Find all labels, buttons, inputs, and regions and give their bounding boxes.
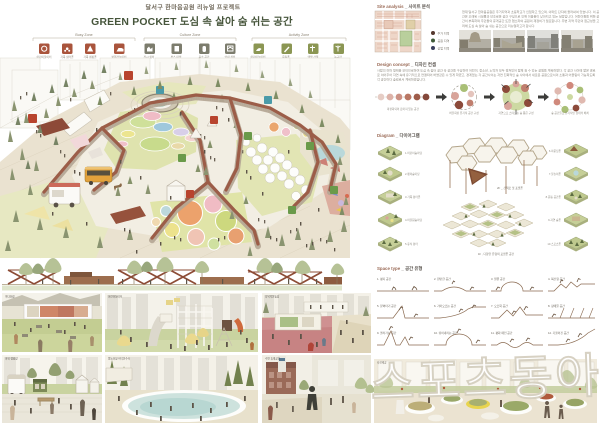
svg-text:9.자연 숲존: 9.자연 숲존 [548, 218, 561, 222]
svg-text:1. 평지 공간: 1. 평지 공간 [377, 277, 392, 281]
svg-text:2.팽이숲마당: 2.팽이숲마당 [405, 172, 420, 176]
svg-text:가족 쉼터존: 가족 쉼터존 [60, 55, 74, 59]
svg-text:5.휴식 쉼터: 5.휴식 쉼터 [405, 242, 418, 246]
svg-text:8.운동 공간존: 8.운동 공간존 [546, 195, 562, 199]
svg-text:Space type _ 공간 유형: Space type _ 공간 유형 [377, 265, 422, 272]
svg-text:2F _ 산책로 및 포켓존: 2F _ 산책로 및 포켓존 [497, 186, 523, 190]
svg-text:Culture Zone: Culture Zone [180, 33, 201, 37]
svg-text:Design concept _ 디자인 컨셉: Design concept _ 디자인 컨셉 [377, 61, 436, 68]
svg-text:달서구 한마음공원 리뉴얼 프로젝트: 달서구 한마음공원 리뉴얼 프로젝트 [145, 4, 240, 12]
svg-text:사람의 허파 형태를 모티브로하여 도심 속 쉼터 공간 속: 사람의 허파 형태를 모티브로하여 도심 속 쉼터 공간 속 공간을 구상하여 … [377, 68, 596, 73]
svg-text:자연으로 스며드는 숲 품은 구성: 자연으로 스며드는 숲 품은 구성 [498, 111, 534, 115]
svg-text:1.어린이숲마당: 1.어린이숲마당 [405, 151, 423, 155]
svg-text:GREEN POCKET 도심 속 살아 숨 쉬는 공간: GREEN POCKET 도심 속 살아 숨 쉬는 공간 [91, 15, 293, 28]
svg-text:4.어울림숲마당: 4.어울림숲마당 [405, 218, 423, 222]
svg-text:3. 원뿔 공간: 3. 원뿔 공간 [491, 277, 506, 281]
svg-text:Activity Zone: Activity Zone [289, 33, 310, 37]
svg-text:6.마운딩존: 6.마운딩존 [549, 149, 562, 153]
svg-text:상업 지역: 상업 지역 [438, 45, 450, 50]
svg-text:가족 캠핑존: 가족 캠핑존 [83, 55, 97, 59]
svg-text:물놀이형 바닥분수터: 물놀이형 바닥분수터 [108, 357, 131, 361]
svg-text:2. 완만한 공간: 2. 완만한 공간 [434, 277, 451, 281]
svg-text:8. 장애물 공간: 8. 장애물 공간 [548, 304, 565, 308]
svg-text:Site analysis _ 사이트 분석: Site analysis _ 사이트 분석 [377, 3, 430, 10]
svg-text:어린이놀이터: 어린이놀이터 [108, 295, 123, 299]
svg-text:로 이어주어 자연 속에 유기적으로 연결되어 버블같은 수: 로 이어주어 자연 속에 유기적으로 연결되어 버블같은 수 있게 하였고, 경… [377, 72, 595, 77]
svg-text:다목적운동장: 다목적운동장 [265, 295, 280, 299]
svg-text:파편화되어 흩어져 있는 공간: 파편화되어 흩어져 있는 공간 [387, 107, 419, 111]
svg-text:야외 캠핑장: 야외 캠핑장 [5, 357, 18, 361]
svg-text:버블화된 유기적 공간 구성: 버블화된 유기적 공간 구성 [449, 111, 479, 115]
svg-text:11. 평화 패인 공간: 11. 평화 패인 공간 [491, 331, 513, 335]
svg-text:려해 도심 속 살아 숨 쉬는 공간으로 리뉴얼하고자 합니: 려해 도심 속 살아 숨 쉬는 공간으로 리뉴얼하고자 합니다. [462, 23, 535, 28]
svg-text:간은 오래된 시설물과 단조로운 공간 구성으로 인해 이용: 간은 오래된 시설물과 단조로운 공간 구성으로 인해 이용률이 낮아지고 있는… [462, 14, 599, 19]
svg-text:Busy Zone: Busy Zone [75, 33, 92, 37]
svg-text:3.가족 쉼터존: 3.가족 쉼터존 [405, 195, 421, 199]
svg-text:미디어월: 미디어월 [5, 295, 15, 299]
svg-text:수변 휴게공간: 수변 휴게공간 [265, 357, 281, 361]
svg-text:Diagram _ 다이어그램: Diagram _ 다이어그램 [377, 132, 420, 139]
svg-text:12. 기울어진 공간: 12. 기울어진 공간 [548, 331, 569, 335]
svg-text:9. 올라가는 공간: 9. 올라가는 공간 [377, 331, 397, 335]
svg-text:각 공간마다 숲길로서 계획하였습니다.: 각 공간마다 숲길로서 계획하였습니다. [377, 77, 426, 82]
svg-text:스포츠동아: 스포츠동아 [370, 350, 600, 411]
svg-text:공원 지역: 공원 지역 [438, 38, 450, 43]
svg-text:간이 부족하며 주민들의 휴게공간 또한 협소하여 공원의: 간이 부족하며 주민들의 휴게공간 또한 협소하여 공원의 재정비가 필요합니다… [462, 18, 599, 23]
svg-text:주거 지역: 주거 지역 [438, 30, 450, 35]
svg-text:7. 오르락 공간: 7. 오르락 공간 [491, 304, 508, 308]
svg-text:7.물놀이존: 7.물놀이존 [549, 172, 562, 176]
svg-text:1F , 다양한 유형의 포켓존 공간: 1F , 다양한 유형의 포켓존 공간 [478, 252, 515, 256]
svg-text:숲 공간들로 유기적인 형태의 배치: 숲 공간들로 유기적인 형태의 배치 [551, 111, 589, 115]
svg-text:5. 붙벽타기 공간: 5. 붙벽타기 공간 [377, 304, 397, 308]
svg-text:10.스포츠존: 10.스포츠존 [547, 242, 561, 246]
svg-text:6. 기어오르는 공간: 6. 기어오르는 공간 [434, 304, 456, 308]
svg-text:현재 달서구 한마음공원은 주거지역과 초등학교가 인접하고: 현재 달서구 한마음공원은 주거지역과 초등학교가 인접하고 있으며, 아파트 … [462, 9, 599, 14]
